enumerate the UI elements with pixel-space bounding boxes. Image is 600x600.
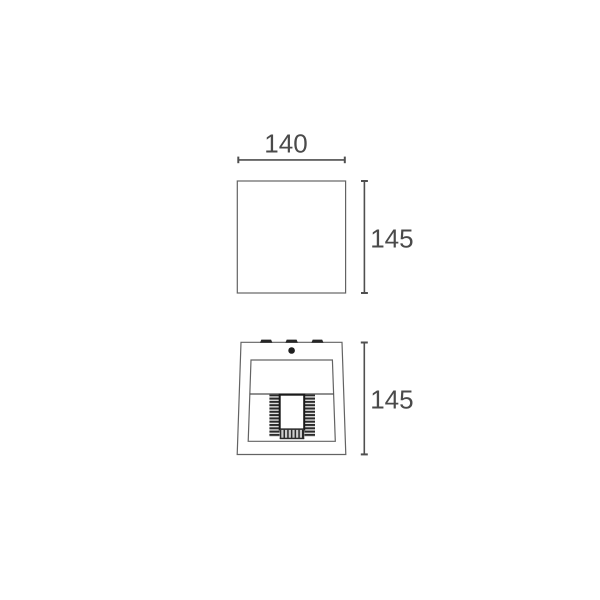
svg-text:145: 145 (370, 224, 413, 254)
svg-text:140: 140 (264, 129, 307, 159)
svg-text:145: 145 (370, 384, 413, 414)
